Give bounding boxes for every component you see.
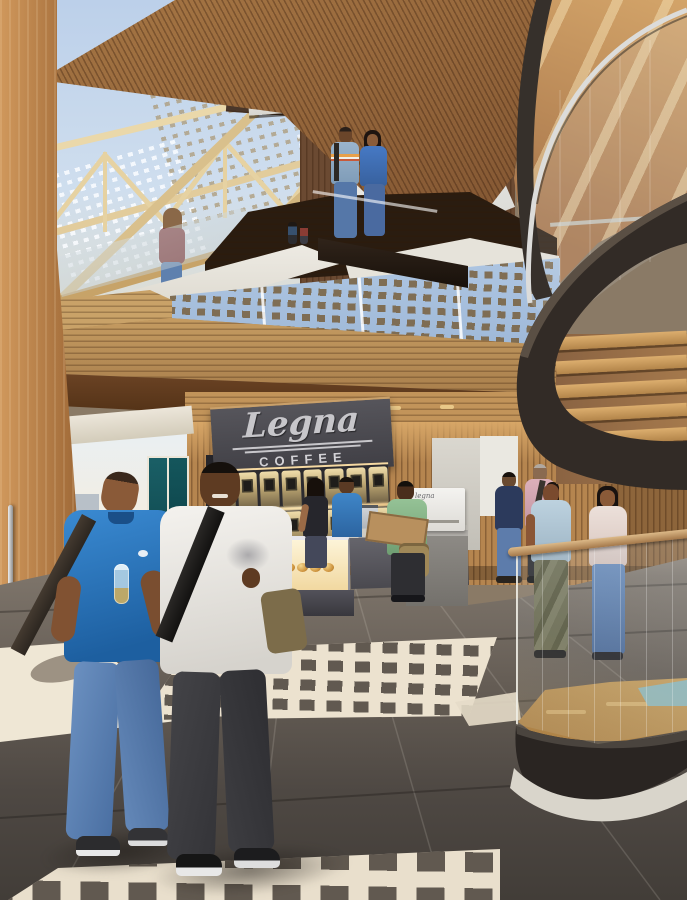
white-man-smile (212, 494, 228, 498)
white-man-shoe-left (176, 854, 222, 876)
blue-man-jeans-left (65, 661, 120, 841)
olive-shoulder-bag (260, 588, 308, 655)
blue-man-chest-logo (138, 550, 148, 557)
white-man-shoe-right (234, 848, 280, 868)
shirt-chest-graphic (226, 538, 270, 572)
white-shirt-man (150, 450, 310, 890)
white-man-pants-right (219, 669, 274, 853)
white-man-pants-left (167, 671, 222, 861)
atrium-rendering: Legna COFFEE legna (0, 0, 687, 900)
water-bottle[interactable] (114, 564, 129, 604)
white-man-hand-on-strap (242, 568, 260, 588)
blue-man-collar (108, 512, 134, 524)
blue-man-shoe-left (76, 836, 120, 856)
white-man-head (200, 462, 240, 508)
